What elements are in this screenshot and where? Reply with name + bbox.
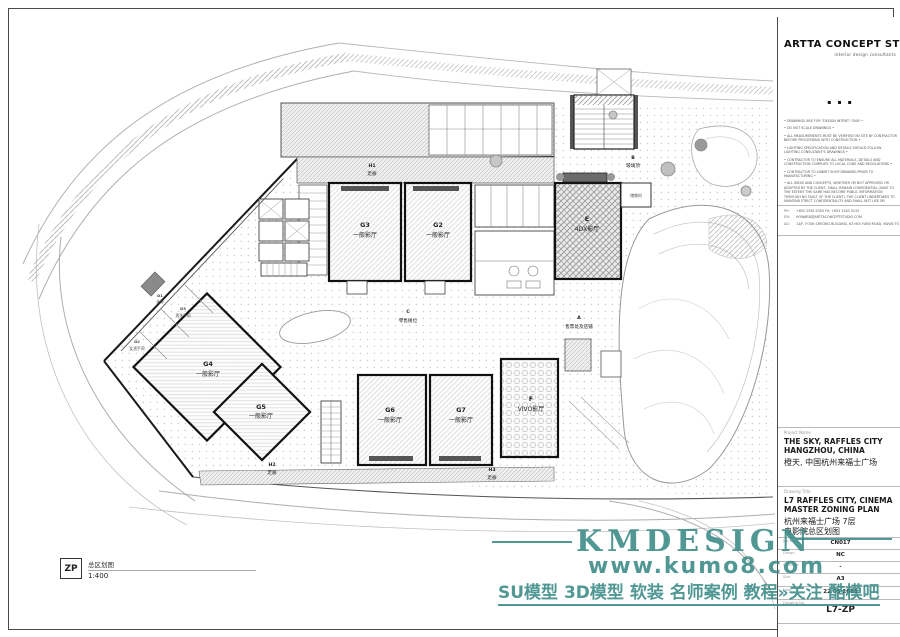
svg-text:一般影厅: 一般影厅 — [196, 370, 220, 378]
svg-text:售票处及店铺: 售票处及店铺 — [565, 323, 593, 330]
svg-text:一般影厅: 一般影厅 — [426, 231, 450, 239]
svg-text:4DX影厅: 4DX影厅 — [575, 225, 600, 233]
note: • DRAWINGS ARE FOR "DESIGN INTENT" ONLY … — [784, 119, 897, 123]
contact-info: PH:+852 2530 5355 FX: +852 2503 5133 EM:… — [784, 208, 899, 227]
svg-text:G4: G4 — [203, 360, 213, 368]
svg-text:一般影厅: 一般影厅 — [449, 416, 473, 424]
drawing-title-cn: 杭州来福士广场 7层 电影院总区划图 — [784, 517, 898, 537]
key-scale: 1:400 — [88, 572, 256, 580]
drawing-title-en: L7 RAFFLES CITY, CINEMA MASTER ZONING PL… — [784, 496, 898, 515]
field-drawn: Drawn NC — [778, 549, 900, 561]
project-name-en: THE SKY, RAFFLES CITY HANGZHOU, CHINA — [784, 437, 898, 456]
zone-label-store: 储物间 — [630, 193, 642, 198]
svg-text:一般影厅: 一般影厅 — [249, 412, 273, 420]
svg-text:H3: H3 — [488, 467, 495, 473]
svg-text:G2: G2 — [433, 221, 443, 229]
svg-text:E: E — [585, 215, 589, 223]
svg-text:VIVO影厅: VIVO影厅 — [518, 405, 545, 413]
project-name-label: Project Name — [784, 430, 898, 435]
svg-text:储物间: 储物间 — [630, 193, 642, 198]
svg-text:G5: G5 — [256, 403, 266, 411]
project-name-cn: 橙天, 中国杭州来福士广场 — [784, 458, 898, 468]
service-band-top — [281, 103, 554, 157]
separator-dots: ▪ ▪ ▪ — [778, 99, 900, 106]
svg-text:D1: D1 — [157, 293, 163, 298]
divider — [778, 486, 900, 487]
contact-address: AD:14/F, FOOK CHEONG BUILDING, 63 HOI YU… — [784, 221, 899, 227]
drawing-title-label: Drawing Title — [784, 489, 898, 494]
divider — [778, 427, 900, 428]
field-checked: Checked - — [778, 561, 900, 573]
svg-text:零售摊位: 零售摊位 — [399, 317, 418, 324]
svg-text:走廊: 走廊 — [156, 299, 164, 304]
svg-text:走廊: 走廊 — [487, 474, 497, 481]
svg-text:F: F — [529, 395, 533, 403]
field-size: Size A3 — [778, 573, 900, 586]
note: • ALL IDEAS AND CONCEPTS, WHETHER OR NOT… — [784, 181, 897, 203]
key-code: ZP — [60, 558, 82, 579]
note: • LIGHTING SPECIFICATION AND DETAILS SHO… — [784, 146, 897, 155]
svg-text:G6: G6 — [385, 406, 395, 414]
project-name-section: Project Name THE SKY, RAFFLES CITY HANGZ… — [784, 430, 898, 468]
svg-text:走廊: 走廊 — [367, 170, 377, 177]
title-block: ARTTA CONCEPT STUDIO interior design con… — [777, 17, 900, 637]
svg-text:男洗手间: 男洗手间 — [175, 313, 190, 318]
svg-text:A: A — [577, 315, 581, 321]
studio-name: ARTTA CONCEPT STUDIO — [784, 39, 896, 50]
drawing-sheet: H1 走廊 G3 一般影厅 G2 一般影厅 E 4DX影厅 B 玻璃顶 储物间 — [8, 8, 894, 630]
svg-text:H2: H2 — [268, 462, 275, 468]
divider — [778, 623, 900, 624]
svg-text:一般影厅: 一般影厅 — [353, 231, 377, 239]
general-notes: • DRAWINGS ARE FOR "DESIGN INTENT" ONLY … — [784, 119, 897, 203]
svg-text:一般影厅: 一般影厅 — [378, 416, 402, 424]
svg-text:走廊: 走廊 — [267, 469, 277, 476]
note: • CONTRACTOR TO ENSURE ALL MATERIALS, DE… — [784, 158, 897, 167]
key-name: 总区划图 — [88, 559, 256, 569]
studio-logo: ARTTA CONCEPT STUDIO interior design con… — [784, 39, 896, 57]
field-job-no: Job No. CN017 — [778, 537, 900, 549]
stair-center-bottom — [321, 401, 341, 463]
floor-plan: H1 走廊 G3 一般影厅 G2 一般影厅 E 4DX影厅 B 玻璃顶 储物间 — [17, 17, 777, 637]
field-date: Date 22 05 2018 — [778, 586, 900, 599]
zone-label-d1: D1 走廊 — [156, 293, 164, 304]
note: • DO NOT SCALE DRAWINGS • — [784, 126, 897, 130]
note: • CONTRACTOR TO SUBMIT SHOP DRAWING PRIO… — [784, 170, 897, 179]
drawing-key: ZP 总区划图 1:400 — [60, 558, 256, 580]
svg-text:B: B — [631, 155, 635, 161]
svg-text:G3: G3 — [360, 221, 370, 229]
note: • ALL MEASUREMENTS MUST BE VERIFIED ON S… — [784, 134, 897, 143]
key-underline — [88, 570, 256, 571]
svg-text:女洗手间: 女洗手间 — [129, 346, 144, 351]
svg-text:G7: G7 — [456, 406, 466, 414]
svg-text:D2: D2 — [134, 339, 140, 344]
divider — [778, 205, 900, 206]
svg-text:D3: D3 — [180, 306, 186, 311]
divider — [778, 235, 900, 236]
drawing-title-section: Drawing Title L7 RAFFLES CITY, CINEMA MA… — [784, 489, 898, 537]
svg-text:H1: H1 — [368, 163, 375, 169]
field-drawing-no: Drawing No. L7-ZP — [778, 599, 900, 623]
core-right — [475, 185, 554, 295]
studio-tagline: interior design consultants — [784, 52, 896, 57]
svg-text:玻璃顶: 玻璃顶 — [626, 162, 640, 169]
